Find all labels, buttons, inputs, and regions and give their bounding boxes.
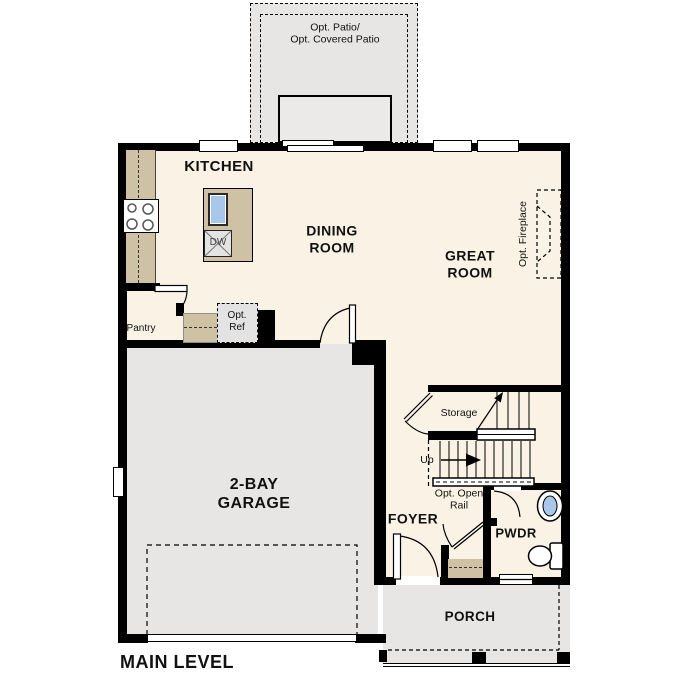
cooktop-icon	[123, 199, 159, 233]
front-door-opening	[396, 576, 440, 585]
patio-slab	[278, 95, 392, 143]
porch-post-right	[557, 652, 570, 664]
pantry-label: Pantry	[127, 323, 156, 335]
great-room-label: GREAT ROOM	[445, 247, 495, 280]
mud-bench-dash	[184, 327, 217, 328]
wall-right	[561, 143, 570, 585]
closet-shelf-dash	[449, 567, 482, 568]
wall-garage-right	[374, 340, 386, 580]
wall-garage-bottom-left	[118, 634, 148, 643]
porch-post-left	[379, 650, 387, 662]
closet-shelf	[448, 559, 483, 578]
mud-bench	[183, 313, 218, 343]
dining-room-label: DINING ROOM	[306, 222, 357, 255]
garage-label: 2-BAY GARAGE	[218, 476, 291, 514]
wall-greatroom-stairs	[428, 385, 570, 392]
patio-slider-door-panel2	[287, 145, 364, 152]
open-rail-label: Opt. Open Rail	[435, 488, 483, 513]
storage-label: Storage	[441, 407, 478, 419]
sink-icon	[208, 193, 228, 226]
up-label: Up	[420, 454, 433, 466]
window-greatroom-2	[477, 140, 519, 152]
porch-post-mid	[472, 652, 486, 664]
floor-plan: Opt. Patio/ Opt. Covered Patio KITCHEN D…	[0, 0, 687, 687]
wall-kitchen-stub	[118, 283, 160, 291]
patio-label: Opt. Patio/ Opt. Covered Patio	[255, 22, 415, 47]
porch-label: PORCH	[445, 609, 496, 625]
wall-ref-block	[258, 310, 275, 343]
wall-powder-left	[483, 483, 491, 578]
kitchen-label: KITCHEN	[184, 158, 253, 176]
fireplace-label: Opt. Fireplace	[517, 188, 535, 280]
powder-label: PWDR	[495, 525, 536, 540]
window-garage-left	[113, 467, 124, 497]
foyer-label: FOYER	[388, 511, 438, 528]
plan-title: MAIN LEVEL	[120, 652, 234, 673]
garage-door	[148, 634, 356, 642]
powder-door-opening	[494, 482, 521, 491]
window-kitchen	[199, 140, 238, 152]
window-greatroom-1	[433, 140, 472, 152]
wall-storage-bottom	[428, 431, 478, 440]
dishwasher-label: DW	[210, 237, 227, 249]
wall-garage-bottom-right	[355, 634, 386, 643]
opt-ref-label: Opt. Ref	[228, 310, 247, 334]
window-porch	[499, 574, 533, 585]
